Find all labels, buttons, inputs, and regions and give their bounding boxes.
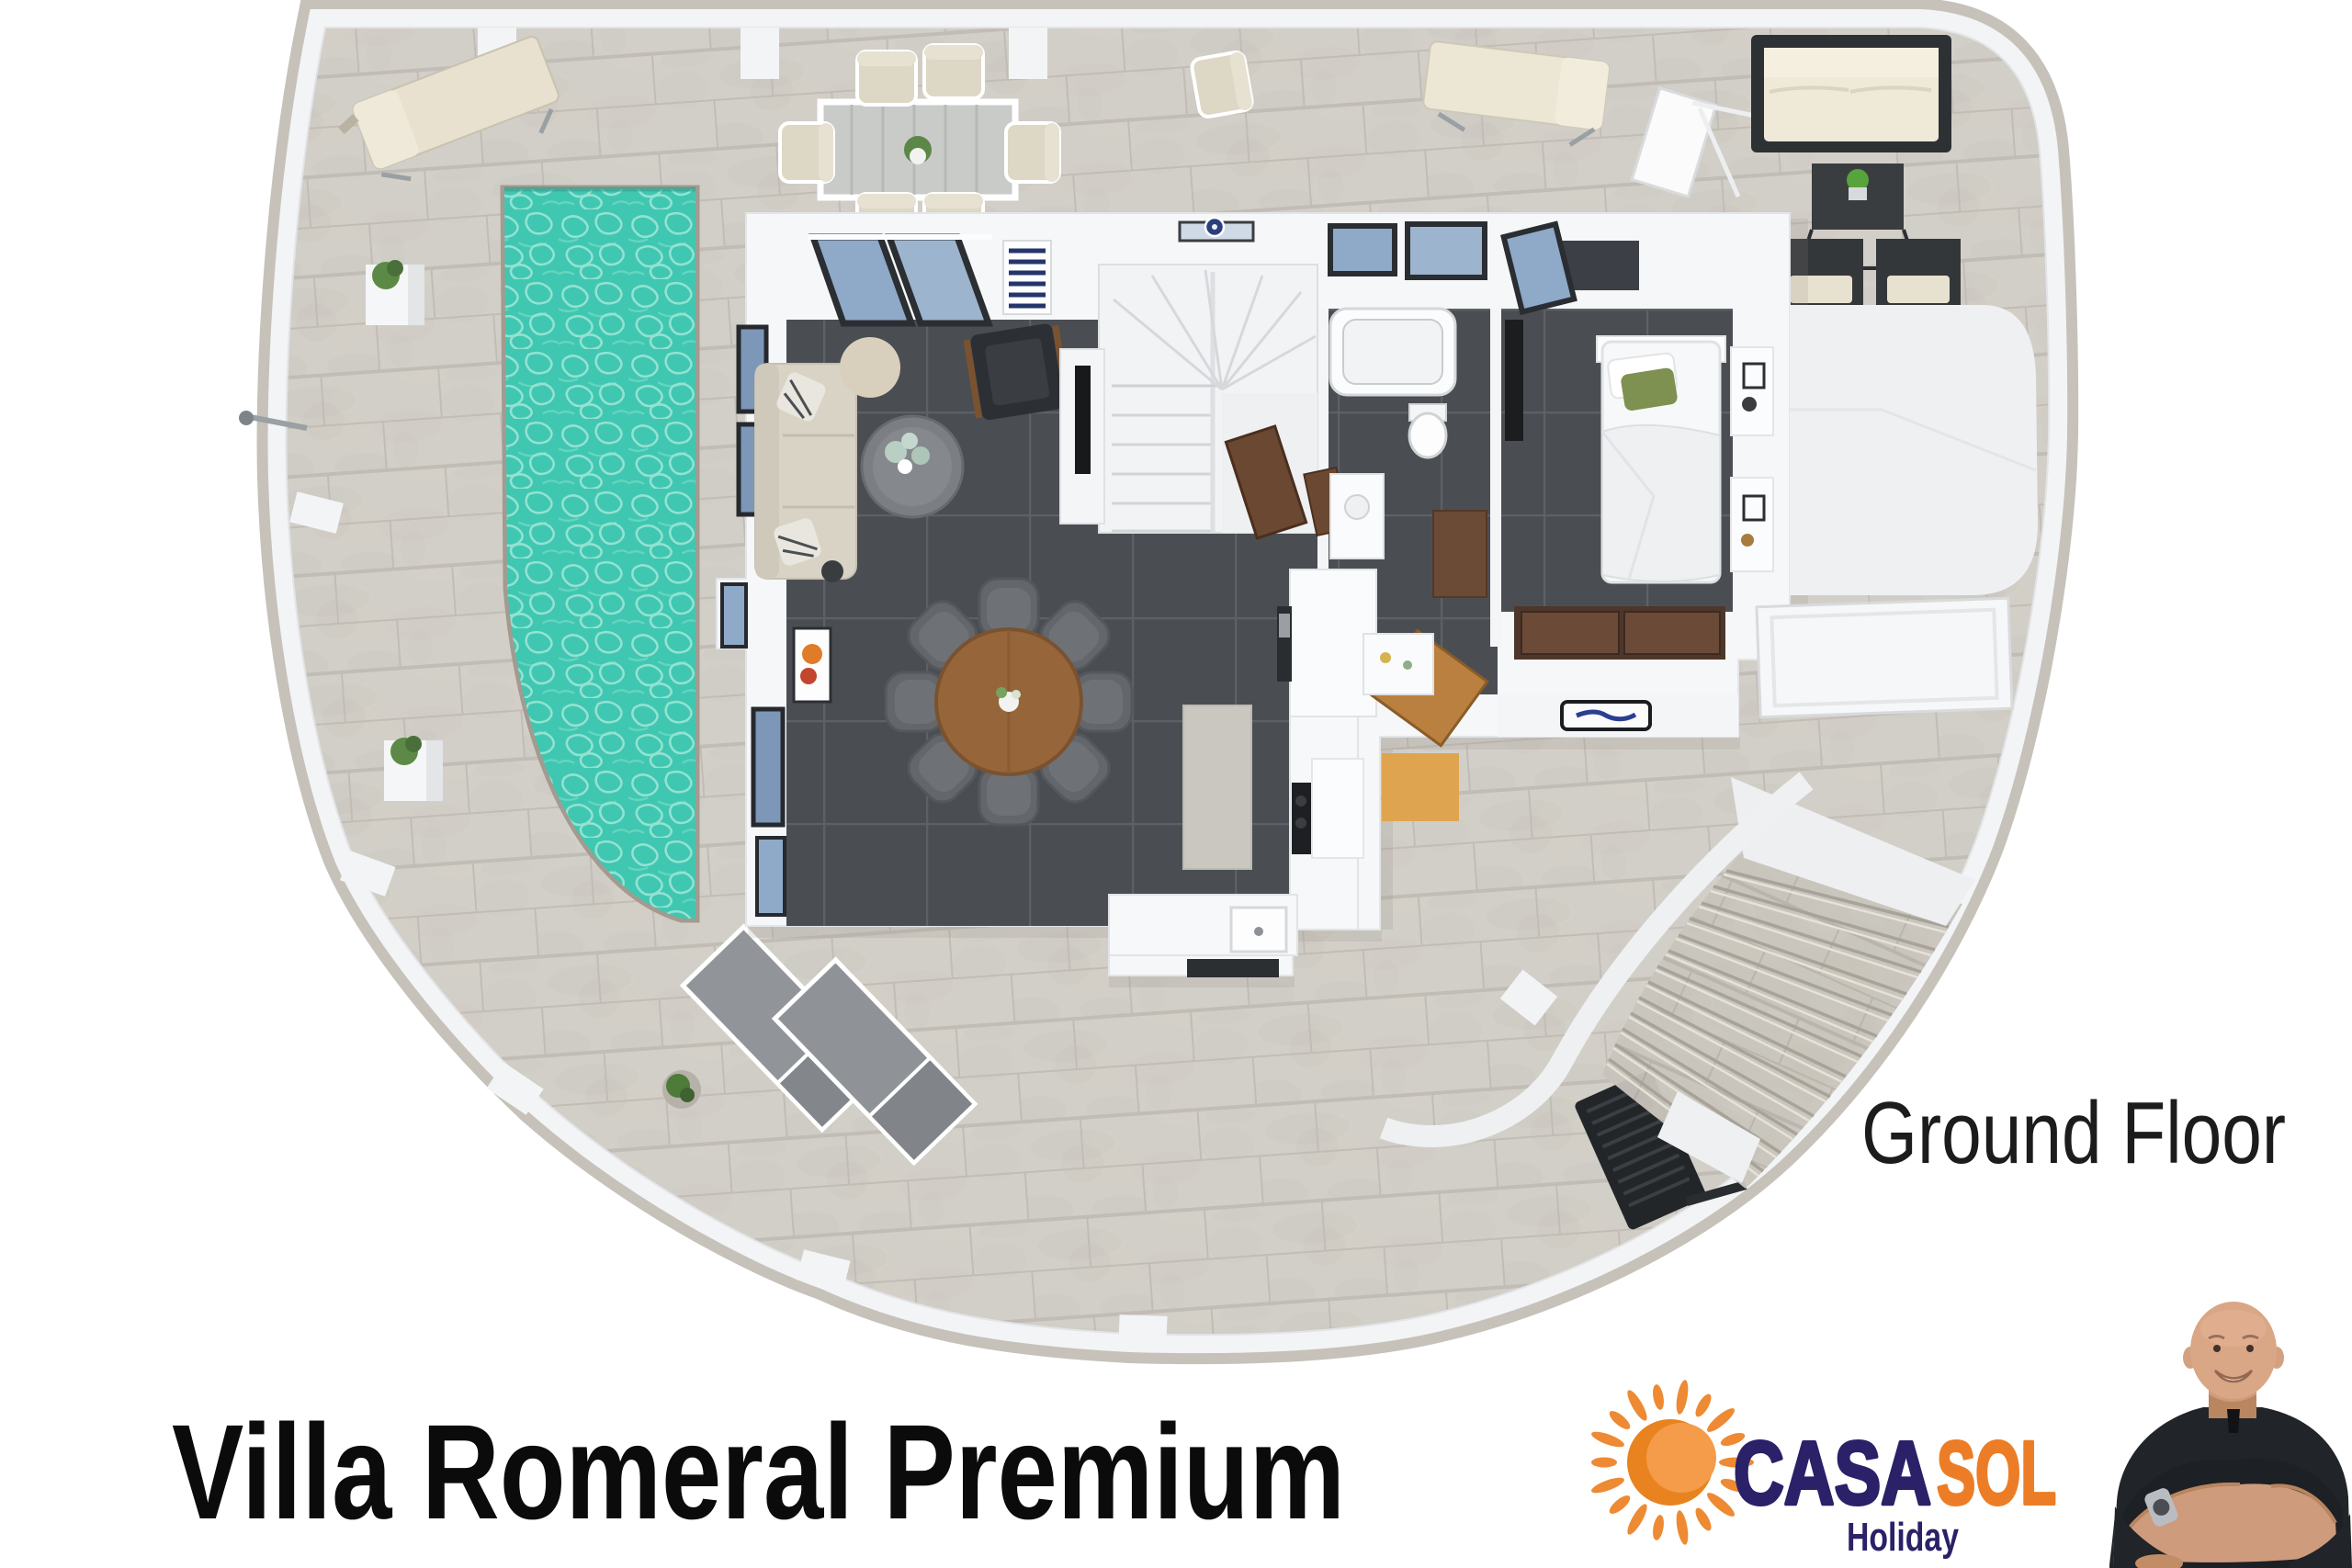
svg-text:Holiday: Holiday <box>1847 1515 1959 1560</box>
svg-text:SOL: SOL <box>1937 1423 2056 1523</box>
svg-text:CASA: CASA <box>1734 1423 1931 1523</box>
svg-text:Ground Floor: Ground Floor <box>1861 1084 2286 1182</box>
svg-text:Villa Romeral Premium: Villa Romeral Premium <box>172 1397 1345 1548</box>
